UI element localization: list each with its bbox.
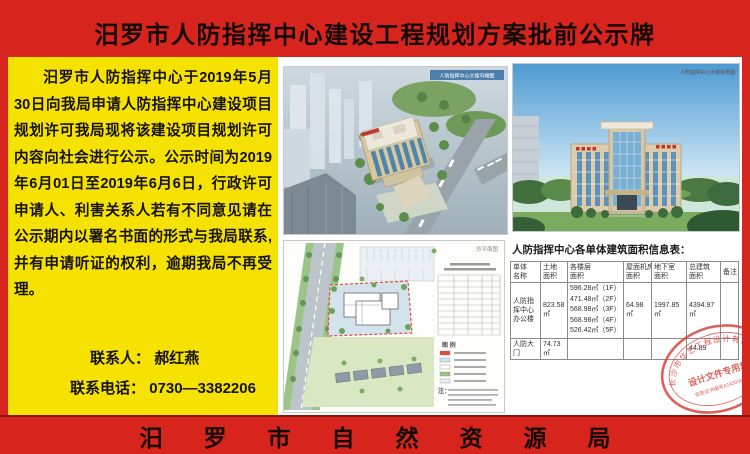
front-caption-text: 人防指挥中心大楼效果图 [680, 69, 735, 76]
siteplan-image: 图 例 注： [283, 240, 505, 413]
cell-floor-areas: 596.28㎡（1F） 471.48㎡（2F） 568.98㎡（3F） 568.… [568, 283, 624, 339]
media-area: 人防指挥中心大楼鸟瞰图 [278, 57, 742, 415]
siteplan-caption-text: 总平面图 [476, 245, 499, 253]
col-total-area: 总建筑面积 [687, 262, 721, 283]
col-basement-area: 地下室面积 [652, 262, 687, 283]
cell-roof-room-area: 64.98㎡ [624, 283, 652, 339]
col-remarks: 备注 [721, 262, 739, 283]
footer-agency-name: 汨罗市自然资源局 [140, 419, 652, 453]
col-floor-areas: 各楼层面积 [568, 262, 624, 283]
cell-floor-areas [568, 338, 624, 359]
front-render-image: 人防指挥中心大楼效果图 [512, 63, 740, 232]
notice-panel: 汨罗市人防指挥中心于2019年5月30日向我局申请人防指挥中心建设项目规划许可我… [8, 57, 278, 415]
design-company-stamp: 长沙市华艺工程设计有限公司 设计文件专用章 资质证书编号A143004066 [655, 313, 742, 415]
cell-unit-name: 人防大门 [511, 338, 541, 359]
aerial-render-graphic: 人防指挥中心大楼鸟瞰图 [284, 67, 507, 234]
footer-banner: 汨罗市自然资源局 [0, 415, 750, 454]
aerial-caption-chip: 人防指挥中心大楼鸟瞰图 [430, 70, 504, 80]
cell-unit-name: 人防指挥中心办公楼 [511, 283, 541, 339]
page-title: 汨罗市人防指挥中心建设工程规划方案批前公示牌 [95, 15, 656, 50]
cell-land-area: 74.73㎡ [541, 338, 568, 359]
contact-person-line: 联系人： 郝红燕 [14, 344, 272, 374]
entrance-canopy [605, 190, 649, 195]
contact-person-name: 郝红燕 [154, 350, 199, 367]
front-render-graphic: 人防指挥中心大楼效果图 [513, 64, 739, 231]
contact-phone-label: 联系电话： [70, 380, 145, 397]
aerial-caption-text: 人防指挥中心大楼鸟瞰图 [439, 73, 494, 80]
aerial-render-image: 人防指挥中心大楼鸟瞰图 [283, 66, 508, 235]
entrance-door [617, 195, 637, 210]
siteplan-lawn [302, 337, 434, 407]
area-table-header-row: 单体名称 土地面积 各楼层面积 屋面机房面积 地下室面积 总建筑面积 备注 [511, 262, 739, 283]
siteplan-graphic: 图 例 注： [284, 241, 504, 412]
col-roof-room-area: 屋面机房面积 [624, 262, 652, 283]
col-land-area: 土地面积 [541, 262, 568, 283]
public-notice-board: 汨罗市人防指挥中心建设工程规划方案批前公示牌 汨罗市人防指挥中心于2019年5月… [0, 0, 750, 454]
col-unit-name: 单体名称 [511, 262, 541, 283]
siteplan-parking [360, 247, 437, 282]
contact-block: 联系人： 郝红燕 联系电话： 0730—3382206 [14, 344, 272, 404]
cell-land-area: 823.58㎡ [541, 283, 568, 339]
siteplan-note-label: 注： [438, 387, 450, 395]
title-banner: 汨罗市人防指挥中心建设工程规划方案批前公示牌 [8, 8, 742, 57]
notice-body-text: 汨罗市人防指挥中心于2019年5月30日向我局申请人防指挥中心建设项目规划许可我… [14, 65, 272, 304]
contact-person-label: 联系人： [90, 350, 150, 367]
contact-phone-number: 0730—3382206 [149, 380, 256, 397]
siteplan-legend-label: 图 例 [442, 341, 456, 349]
area-table-title: 人防指挥中心各单体建筑面积信息表： [512, 242, 742, 257]
siteplan-site [328, 281, 412, 336]
cell-roof-room-area [624, 338, 652, 359]
contact-phone-line: 联系电话： 0730—3382206 [14, 374, 272, 404]
